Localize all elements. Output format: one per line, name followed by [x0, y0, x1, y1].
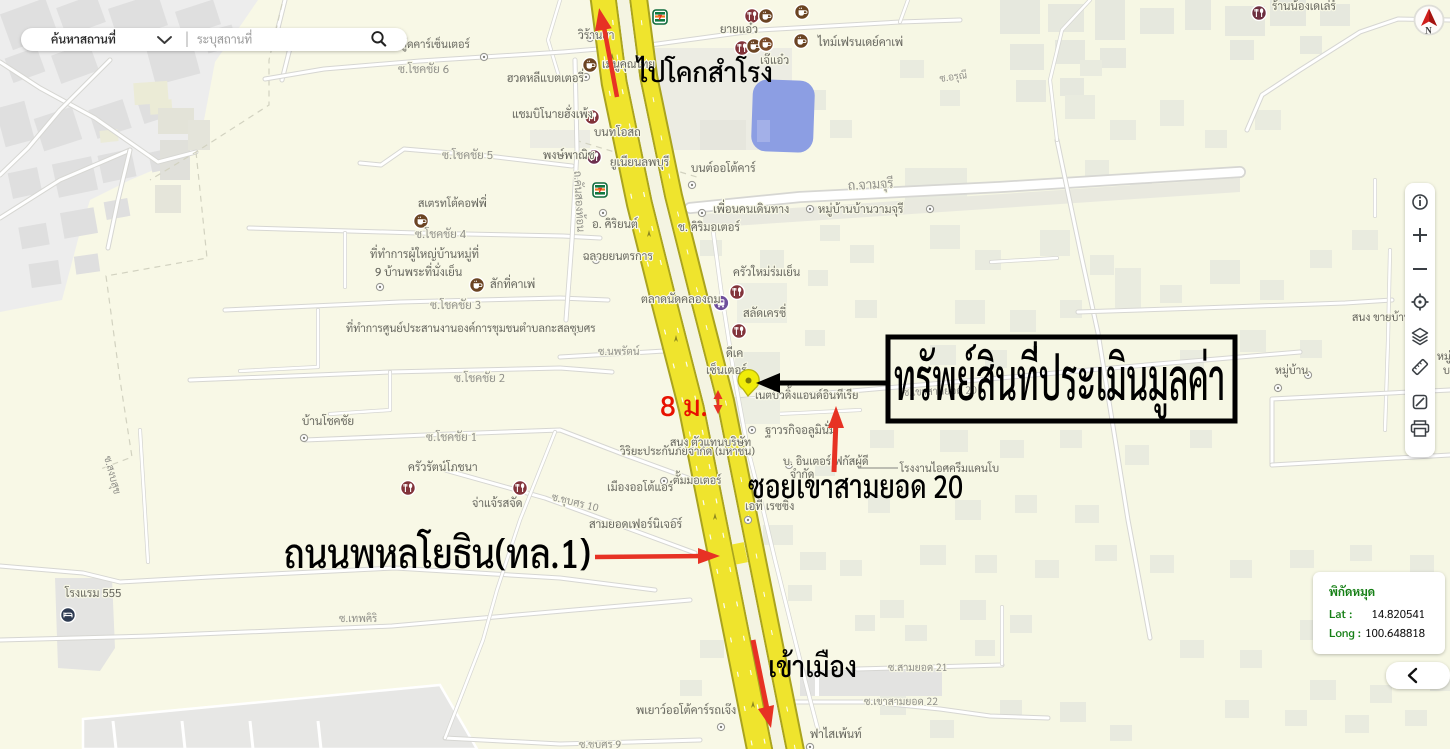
- svg-text:N: N: [1425, 26, 1432, 36]
